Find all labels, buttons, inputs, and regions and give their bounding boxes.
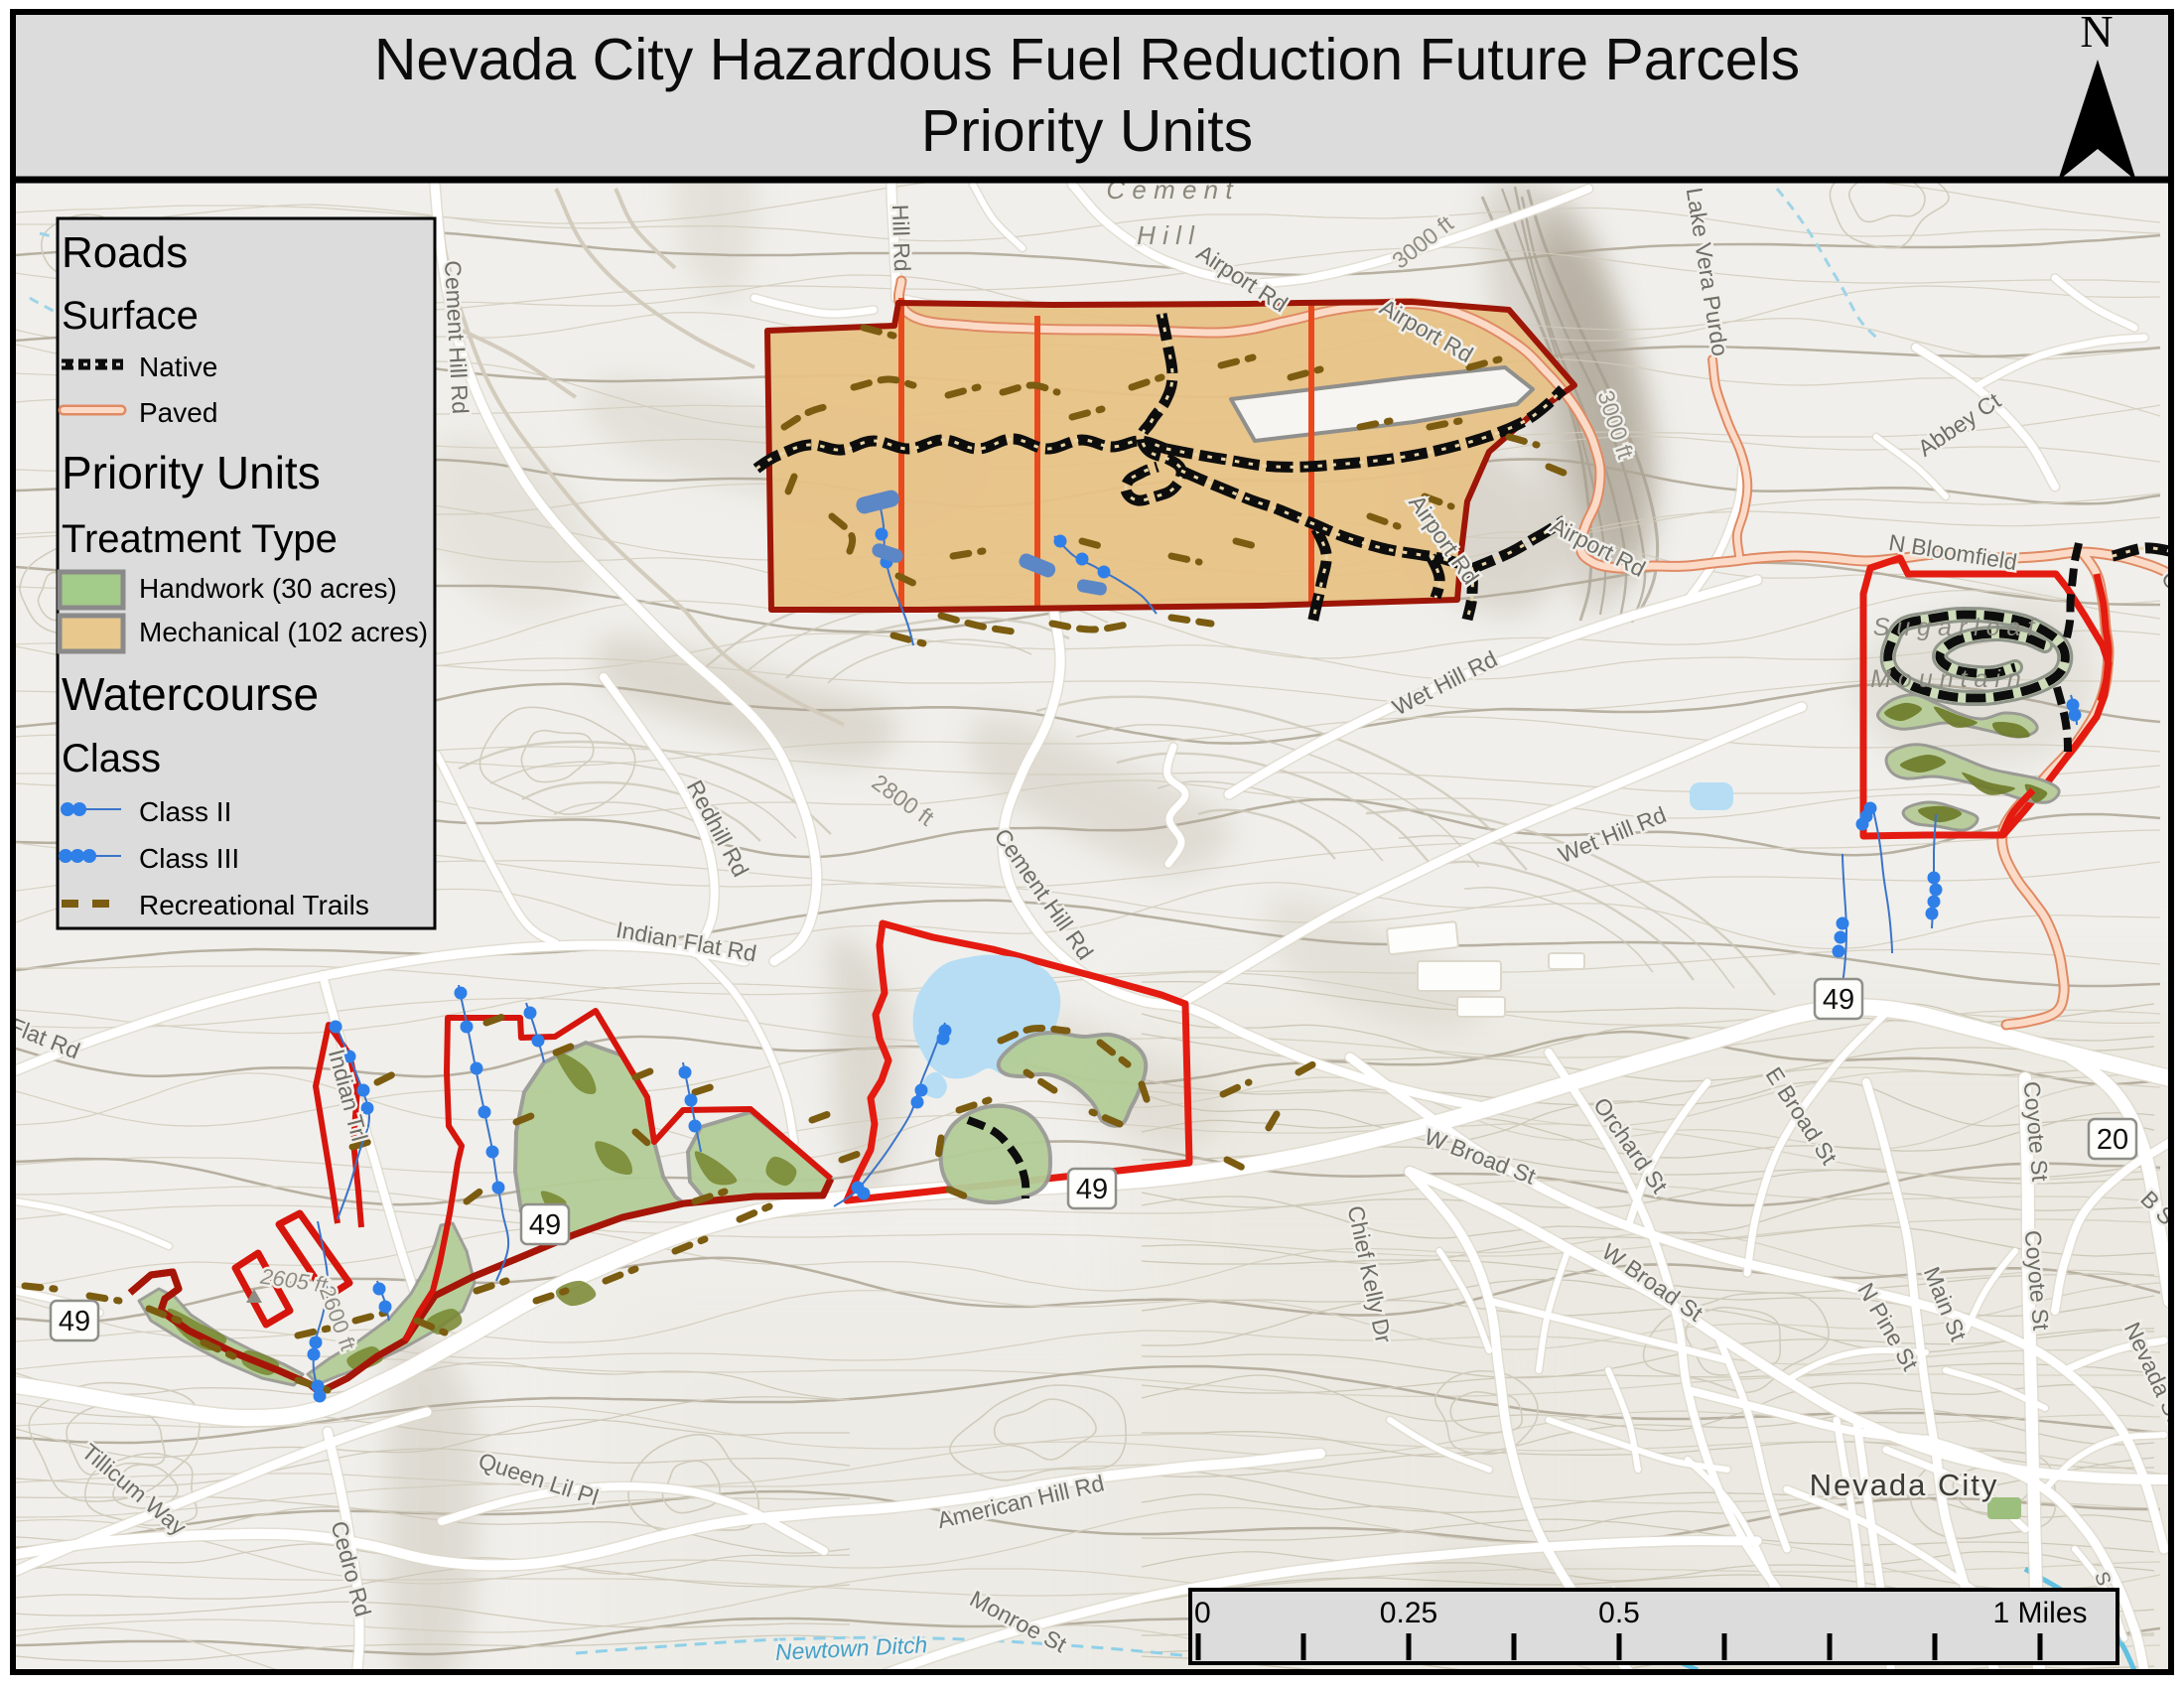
- svg-text:Handwork (30 acres): Handwork (30 acres): [139, 573, 397, 604]
- svg-text:49: 49: [59, 1306, 90, 1337]
- svg-text:49: 49: [529, 1209, 561, 1241]
- svg-text:20: 20: [2097, 1124, 2128, 1156]
- svg-text:Native: Native: [139, 352, 217, 382]
- svg-text:0: 0: [1194, 1597, 1211, 1629]
- svg-text:S u g a r l o a f: S u g a r l o a f: [1873, 614, 2038, 641]
- svg-text:49: 49: [1076, 1174, 1108, 1205]
- svg-text:Nevada City Hazardous Fuel Red: Nevada City Hazardous Fuel Reduction Fut…: [374, 27, 1800, 92]
- svg-text:Surface: Surface: [62, 294, 199, 338]
- svg-text:1 Miles: 1 Miles: [1992, 1597, 2087, 1629]
- svg-text:49: 49: [1823, 984, 1854, 1016]
- svg-text:H i l l: H i l l: [1137, 220, 1195, 250]
- svg-text:Hill Rd: Hill Rd: [887, 204, 915, 272]
- svg-text:Class III: Class III: [139, 843, 239, 874]
- svg-text:Paved: Paved: [139, 397, 217, 428]
- svg-text:Class: Class: [62, 737, 161, 780]
- svg-text:Class II: Class II: [139, 796, 231, 827]
- svg-text:Roads: Roads: [62, 228, 188, 277]
- svg-text:Priority Units: Priority Units: [62, 447, 321, 498]
- svg-text:Mechanical (102 acres): Mechanical (102 acres): [139, 617, 428, 647]
- svg-text:Recreational Trails: Recreational Trails: [139, 890, 369, 920]
- svg-text:Watercourse: Watercourse: [62, 668, 319, 720]
- svg-text:Treatment Type: Treatment Type: [62, 517, 338, 561]
- svg-text:0.5: 0.5: [1598, 1597, 1640, 1629]
- svg-text:Nevada City: Nevada City: [1810, 1468, 1999, 1502]
- svg-text:M o u n t a i n: M o u n t a i n: [1870, 665, 2020, 693]
- svg-text:Priority Units: Priority Units: [921, 98, 1253, 164]
- svg-text:0.25: 0.25: [1380, 1597, 1437, 1629]
